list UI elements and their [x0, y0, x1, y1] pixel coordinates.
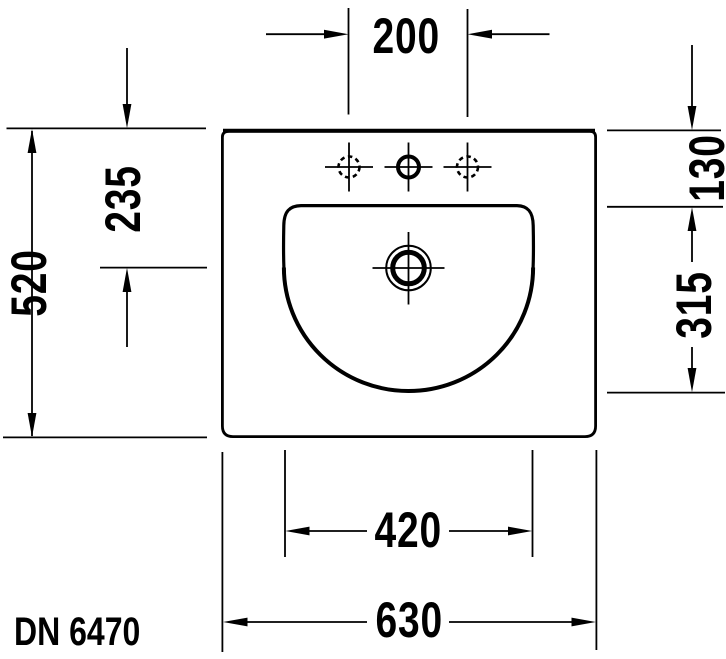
washbasin-technical-drawing	[0, 0, 726, 659]
arrowhead-up	[28, 129, 37, 153]
dimension-235-lines	[100, 48, 207, 347]
model-number-label: DN 6470	[14, 612, 140, 652]
dimension-130-lines	[607, 45, 723, 207]
arrowhead-down	[688, 106, 697, 130]
arrowhead-right	[324, 30, 349, 39]
arrowhead-left	[285, 527, 309, 536]
dimension-520-lines	[3, 128, 207, 437]
arrowhead-up	[688, 207, 697, 231]
dimension-200-lines	[266, 8, 550, 117]
drawing-canvas: 200 520 235 130 315 420 630 DN 6470	[0, 0, 726, 659]
arrowhead-left	[468, 30, 493, 39]
arrowhead-right	[508, 527, 532, 536]
arrowhead-right	[572, 618, 596, 627]
arrowhead-down	[688, 368, 697, 392]
drain-outlet	[373, 232, 445, 305]
dimension-315-lines	[607, 207, 725, 392]
arrowhead-up	[123, 268, 132, 292]
arrowhead-down	[123, 104, 132, 128]
faucet-hole-left	[325, 143, 373, 192]
faucet-hole-center	[385, 143, 433, 192]
arrowhead-down	[28, 413, 37, 437]
faucet-hole-right	[444, 143, 492, 192]
dimension-420-lines	[285, 450, 533, 557]
arrowhead-left	[223, 618, 248, 627]
dimension-630-lines	[222, 450, 596, 652]
